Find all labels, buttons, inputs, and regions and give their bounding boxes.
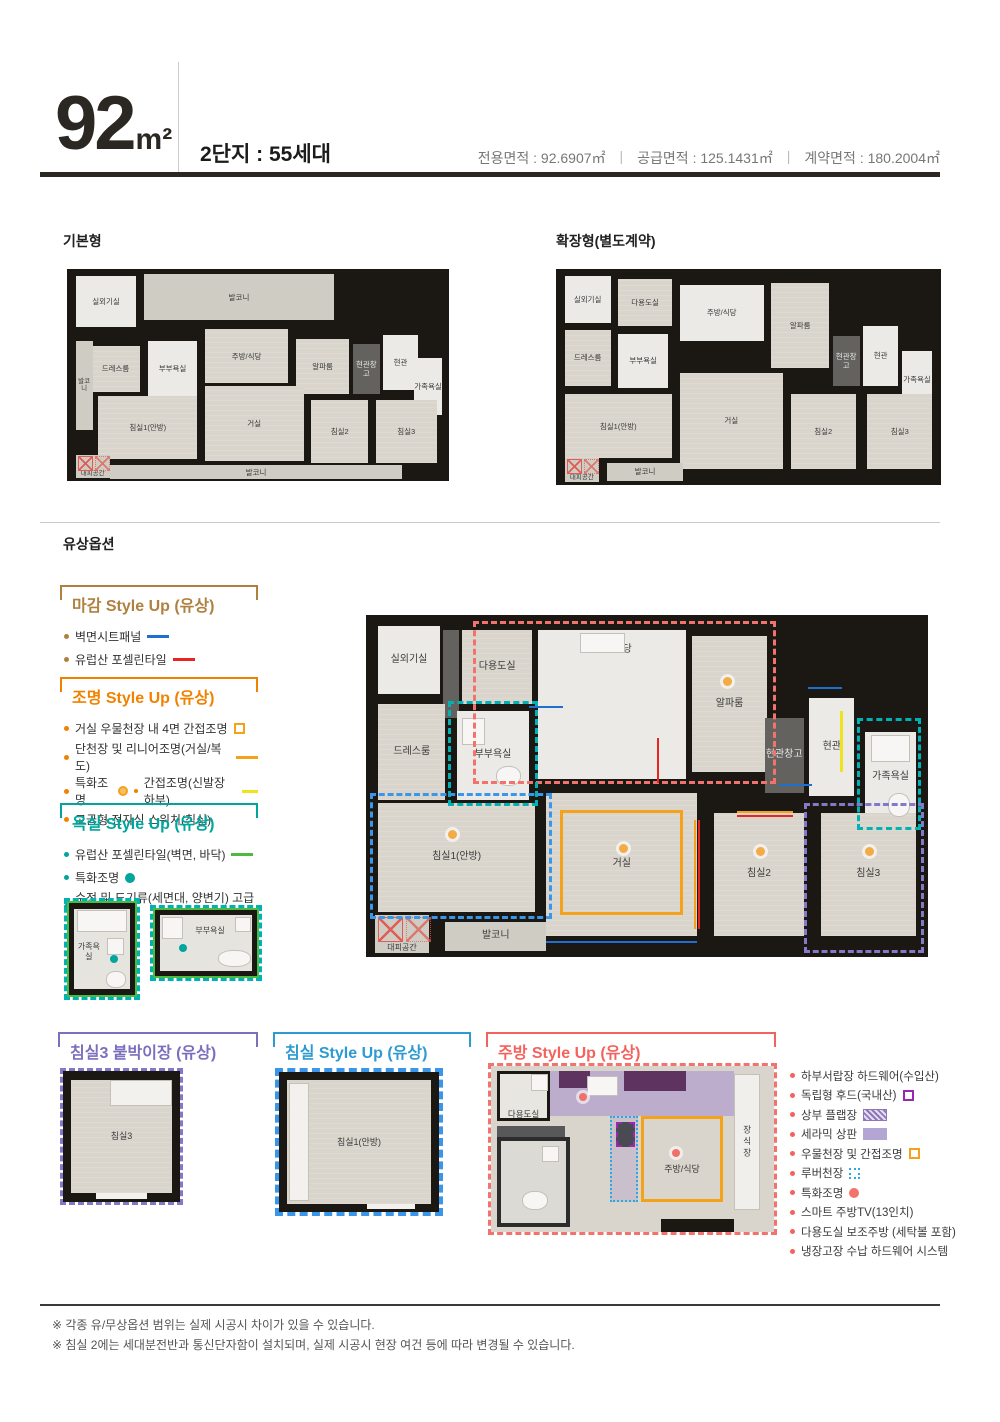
room-living: 거실: [205, 386, 304, 462]
bullet-icon: [64, 755, 69, 760]
basin-fixture: [531, 1074, 548, 1091]
orange-line-swatch-icon: [236, 756, 258, 759]
room-bedroom1: 침실1(안방): [378, 803, 535, 912]
item-label: 상부 플랩장: [801, 1107, 857, 1123]
teal-dot-swatch-icon: [125, 873, 135, 883]
red-dot-swatch-icon: [849, 1188, 859, 1198]
list-item: 다용도실 보조주방 (세탁볼 포함): [790, 1222, 990, 1242]
header-divider: [178, 62, 179, 174]
room-dress-room: 드레스룸: [565, 330, 611, 386]
list-item: 유럽산 포셀린타일: [64, 648, 258, 671]
door-gap: [96, 1193, 147, 1200]
wall-sheet-panel: [289, 1083, 310, 1201]
sheet-panel-line: [808, 687, 842, 689]
room-family-bath-label: 가족욕실: [76, 942, 102, 962]
room-utility: [497, 1071, 551, 1121]
bedroom-option-box: 침실 Style Up (유상): [273, 1032, 471, 1063]
room-outdoor-unit: 실외기실: [76, 276, 137, 326]
bullet-icon: [790, 1112, 795, 1117]
sheet-panel-line: [546, 941, 697, 943]
list-item: 단천장 및 리니어조명(거실/복도): [64, 740, 258, 774]
bullet-icon: [790, 1073, 795, 1078]
item-label: 독립형 후드(국내산): [801, 1087, 897, 1103]
list-item: 하부서랍장 하드웨어(수입산): [790, 1066, 990, 1086]
page-title: 92m²: [55, 86, 172, 162]
basin-fixture: [542, 1146, 559, 1163]
exclusive-area: 전용면적 : 92.6907㎡: [478, 148, 606, 168]
red-line-swatch-icon: [173, 658, 195, 661]
separator: |: [620, 148, 624, 168]
escape-hatch-symbol: [584, 459, 599, 474]
item-label: 하부서랍장 하드웨어(수입산): [801, 1068, 939, 1084]
toilet-fixture: [496, 766, 521, 786]
list-item: 세라믹 상판: [790, 1125, 990, 1145]
toilet-fixture: [218, 950, 251, 967]
room-outdoor-unit: 실외기실: [565, 276, 611, 323]
room-master-bath: 부부욕실: [618, 334, 668, 388]
bedroom-option-title: 침실 Style Up (유상): [273, 1032, 471, 1063]
room-alpha-room: 알파룸: [771, 283, 828, 369]
list-item: 유럽산 포셀린타일(벽면, 바닥): [64, 843, 258, 866]
room-entry: 현관: [809, 698, 854, 797]
bullet-icon: [790, 1190, 795, 1195]
room-alpha-room: 알파룸: [692, 636, 768, 772]
lighting-styleup-title: 조명 Style Up (유상): [60, 677, 258, 708]
footnote-2: ※ 침실 2에는 세대분전반과 통신단자함이 설치되며, 실제 시공시 현장 여…: [52, 1336, 575, 1353]
list-item: 수전 및 도기류(세면대, 양변기) 고급형: [64, 889, 258, 923]
door-gap: [367, 1204, 415, 1210]
bullet-icon: [64, 852, 69, 857]
room-entry: 현관: [383, 335, 417, 390]
bullet-icon: [790, 1093, 795, 1098]
room-utility-label: 다용도실: [499, 1108, 547, 1120]
kitchen-option-title: 주방 Style Up (유상): [486, 1032, 776, 1063]
item-label: 다용도실 보조주방 (세탁볼 포함): [801, 1224, 956, 1240]
list-item: 스마트 주방TV(13인치): [790, 1203, 990, 1223]
room-living: 거실: [546, 793, 697, 936]
wall-block: [661, 1219, 735, 1232]
display-cabinet: 장식장: [734, 1074, 759, 1210]
room-master-bath: 부부욕실: [148, 341, 197, 396]
bedroom3-option-box: 침실3 붙박이장 (유상): [58, 1032, 258, 1063]
basic-plan-title: 기본형: [63, 231, 102, 251]
list-item: 특화조명: [790, 1183, 990, 1203]
orange-square-swatch-icon: [909, 1148, 920, 1159]
basin-fixture: [107, 938, 124, 955]
purple-hatch-swatch-icon: [863, 1109, 887, 1121]
contract-area: 계약면적 : 180.2004㎡: [804, 148, 940, 168]
item-label: 거실 우물천장 내 4면 간접조명: [75, 720, 228, 737]
room-outdoor-unit: 실외기실: [378, 626, 440, 694]
bullet-icon: [64, 726, 69, 731]
list-item: 루버천장: [790, 1164, 990, 1184]
room-utility: 다용도실: [462, 630, 532, 705]
room-entry: 현관: [863, 326, 897, 386]
louver-ceiling-zone: [610, 1116, 638, 1202]
extended-plan-title: 확장형(별도계약): [556, 231, 655, 251]
bullet-icon: [64, 657, 69, 662]
escape-hatch-symbol: [378, 917, 403, 943]
bath-accent-light-dot: [179, 944, 187, 952]
list-item: 거실 우물천장 내 4면 간접조명: [64, 717, 258, 740]
room-bedroom3: 침실3: [821, 813, 916, 935]
built-in-closet: [110, 1080, 172, 1106]
supply-area: 공급면적 : 125.1431㎡: [637, 148, 773, 168]
bedroom3-diagram: 침실3: [60, 1068, 183, 1205]
purple-dashed-swatch-icon: [903, 1090, 914, 1101]
accent-light-dot: [579, 1093, 587, 1101]
escape-hatch-symbol: [567, 459, 582, 474]
brochure-page: 92m² 2단지 : 55세대 전용면적 : 92.6907㎡ | 공급면적 :…: [0, 0, 1000, 1422]
room-bedroom3: 침실3: [376, 400, 437, 463]
room-kitchen-dining: 주방/식당: [205, 329, 289, 384]
bullet-icon: [790, 1210, 795, 1215]
list-item: 독립형 후드(국내산): [790, 1086, 990, 1106]
room-living: 거실: [680, 373, 783, 469]
purple-solid-swatch-icon: [863, 1128, 887, 1140]
room-bedroom3: 침실3: [71, 1080, 172, 1193]
room-balcony-top: 발코니: [144, 274, 334, 320]
independent-hood: [616, 1122, 636, 1147]
kitchen-styleup-items: 하부서랍장 하드웨어(수입산) 독립형 후드(국내산) 상부 플랩장 세라믹 상…: [790, 1066, 990, 1261]
list-item: 냉장고장 수납 하드웨어 시스템: [790, 1242, 990, 1262]
green-line-swatch-icon: [231, 853, 253, 856]
accent-light-dot: [723, 677, 732, 686]
porcelain-tile-line: [698, 820, 700, 929]
escape-hatch-symbol: [78, 456, 93, 471]
bullet-icon: [790, 1151, 795, 1156]
room-bedroom1: 침실1(안방): [565, 394, 672, 458]
kitchen-diagram: 다용도실 주방/식당 장식장: [488, 1063, 777, 1235]
separator: |: [787, 148, 791, 168]
paid-options-title: 유상옵션: [63, 534, 115, 554]
bath-styleup-items: 유럽산 포셀린타일(벽면, 바닥) 특화조명 수전 및 도기류(세면대, 양변기…: [64, 843, 258, 923]
item-label: 수전 및 도기류(세면대, 양변기) 고급형: [75, 889, 258, 923]
section-divider: [40, 522, 940, 523]
item-label: 특화조명: [801, 1185, 843, 1201]
room-dress-room: 드레스룸: [378, 704, 445, 799]
escape-hatch-symbol: [406, 917, 431, 943]
bedroom-diagram: 침실1(안방): [275, 1068, 443, 1216]
room-balcony: 발코니: [607, 463, 684, 481]
bathtub-fixture: [871, 735, 910, 762]
bullet-icon: [790, 1132, 795, 1137]
room-bedroom2: 침실2: [311, 400, 368, 463]
basic-floor-plan: 실외기실 발코니 드레스룸 부부욕실 주방/식당 알파룸 현관창고 현관 가족욕…: [68, 270, 448, 480]
area-unit: m²: [136, 123, 173, 156]
units-subtitle: 2단지 : 55세대: [200, 138, 331, 168]
orange-dot-swatch-icon: [118, 786, 128, 796]
blue-line-swatch-icon: [147, 635, 169, 638]
ceramic-counter: [550, 1071, 734, 1116]
footnote-1: ※ 각종 유/무상옵션 범위는 실제 시공시 차이가 있을 수 있습니다.: [52, 1316, 375, 1333]
item-label: 유럽산 포셀린타일: [75, 651, 167, 668]
bullet-icon: [790, 1249, 795, 1254]
wall-block: [497, 1126, 565, 1138]
finish-styleup-title: 마감 Style Up (유상): [60, 585, 258, 616]
orange-square-swatch-icon: [234, 723, 245, 734]
room-bedroom1: 침실1(안방): [98, 396, 197, 459]
bullet-icon: [64, 789, 69, 794]
bullet-icon: [64, 875, 69, 880]
room-bedroom2: 침실2: [714, 813, 804, 935]
kitchen-option-box: 주방 Style Up (유상): [486, 1032, 776, 1063]
extended-floor-plan: 실외기실 다용도실 주방/식당 알파룸 드레스룸 부부욕실 현관창고 현관 가족…: [557, 270, 940, 484]
item-label: 벽면시트패널: [75, 628, 141, 645]
room-kitchen-dining-label: 주방/식당: [647, 1162, 718, 1175]
room-entry-storage: 현관창고: [833, 336, 860, 385]
room-balcony: 발코니: [445, 922, 546, 951]
item-label: 냉장고장 수납 하드웨어 시스템: [801, 1243, 948, 1259]
toilet-fixture: [106, 971, 126, 988]
escape-hatch-symbol: [95, 456, 110, 471]
bath-accent-light-dot: [110, 955, 118, 963]
item-label: 유럽산 포셀린타일(벽면, 바닥): [75, 846, 225, 863]
bullet-icon: [790, 1229, 795, 1234]
accent-light-dot: [619, 844, 628, 853]
footer-rule: [40, 1304, 940, 1306]
room-bedroom2: 침실2: [791, 394, 856, 469]
room-entry-storage: 현관창고: [765, 718, 804, 793]
list-item: 벽면시트패널: [64, 625, 258, 648]
sink-fixture: [587, 1076, 618, 1096]
list-item: 우물천장 및 간접조명: [790, 1144, 990, 1164]
toilet-fixture: [522, 1191, 547, 1211]
area-info: 전용면적 : 92.6907㎡ | 공급면적 : 125.1431㎡ | 계약면…: [470, 148, 940, 168]
item-label: 세라믹 상판: [801, 1126, 857, 1142]
bullet-icon: [790, 1171, 795, 1176]
room-balcony-bottom: 발코니: [110, 465, 403, 479]
item-label: 단천장 및 리니어조명(거실/복도): [75, 740, 230, 774]
flap-cabinet: [559, 1071, 590, 1088]
bedroom3-option-title: 침실3 붙박이장 (유상): [58, 1032, 258, 1063]
room-alpha-room: 알파룸: [296, 339, 349, 394]
item-label: 우물천장 및 간접조명: [801, 1146, 903, 1162]
yellow-line-swatch-icon: [242, 790, 258, 793]
sink-fixture: [580, 633, 625, 653]
basin-fixture: [462, 718, 484, 745]
list-item: 특화조명: [64, 866, 258, 889]
room-bedroom3: 침실3: [867, 394, 932, 469]
toilet-fixture: [888, 793, 910, 817]
room-balcony-left: 발코니: [76, 341, 93, 429]
bath-styleup-title: 욕실 Style Up (유상): [60, 803, 258, 834]
room-bedroom1: 침실1(안방): [287, 1080, 431, 1203]
room-master-bath-label: 부부욕실: [194, 926, 227, 936]
bullet-icon: [64, 904, 69, 909]
kitchen-coffered-ceiling-light: [641, 1116, 723, 1202]
finish-styleup-box: 마감 Style Up (유상) 벽면시트패널 유럽산 포셀린타일: [60, 585, 258, 671]
bullet-icon: [134, 789, 138, 793]
header-rule: [40, 172, 940, 177]
finish-styleup-items: 벽면시트패널 유럽산 포셀린타일: [64, 625, 258, 671]
bath-styleup-box: 욕실 Style Up (유상) 유럽산 포셀린타일(벽면, 바닥) 특화조명 …: [60, 803, 258, 923]
area-number: 92: [55, 81, 134, 166]
display-cabinet-label: 장식장: [741, 1125, 753, 1160]
blue-dotted-swatch-icon: [849, 1168, 860, 1179]
room-bath: [497, 1137, 571, 1227]
room-dress-room: 드레스룸: [91, 346, 140, 392]
list-item: 상부 플랩장: [790, 1105, 990, 1125]
accent-light-dot: [672, 1149, 680, 1157]
room-kitchen-dining: 주방/식당: [680, 285, 764, 341]
room-utility: 다용도실: [618, 279, 672, 326]
flap-cabinet: [624, 1071, 686, 1091]
room-entry-storage: 현관창고: [353, 344, 380, 394]
item-label: 루버천장: [801, 1165, 843, 1181]
item-label: 특화조명: [75, 869, 119, 886]
bullet-icon: [64, 634, 69, 639]
item-label: 스마트 주방TV(13인치): [801, 1204, 913, 1220]
option-floor-plan: 실외기실 다용도실 주방/식당 알파룸 드레스룸 부부욕실 현관창고 현관 가족…: [367, 616, 927, 956]
